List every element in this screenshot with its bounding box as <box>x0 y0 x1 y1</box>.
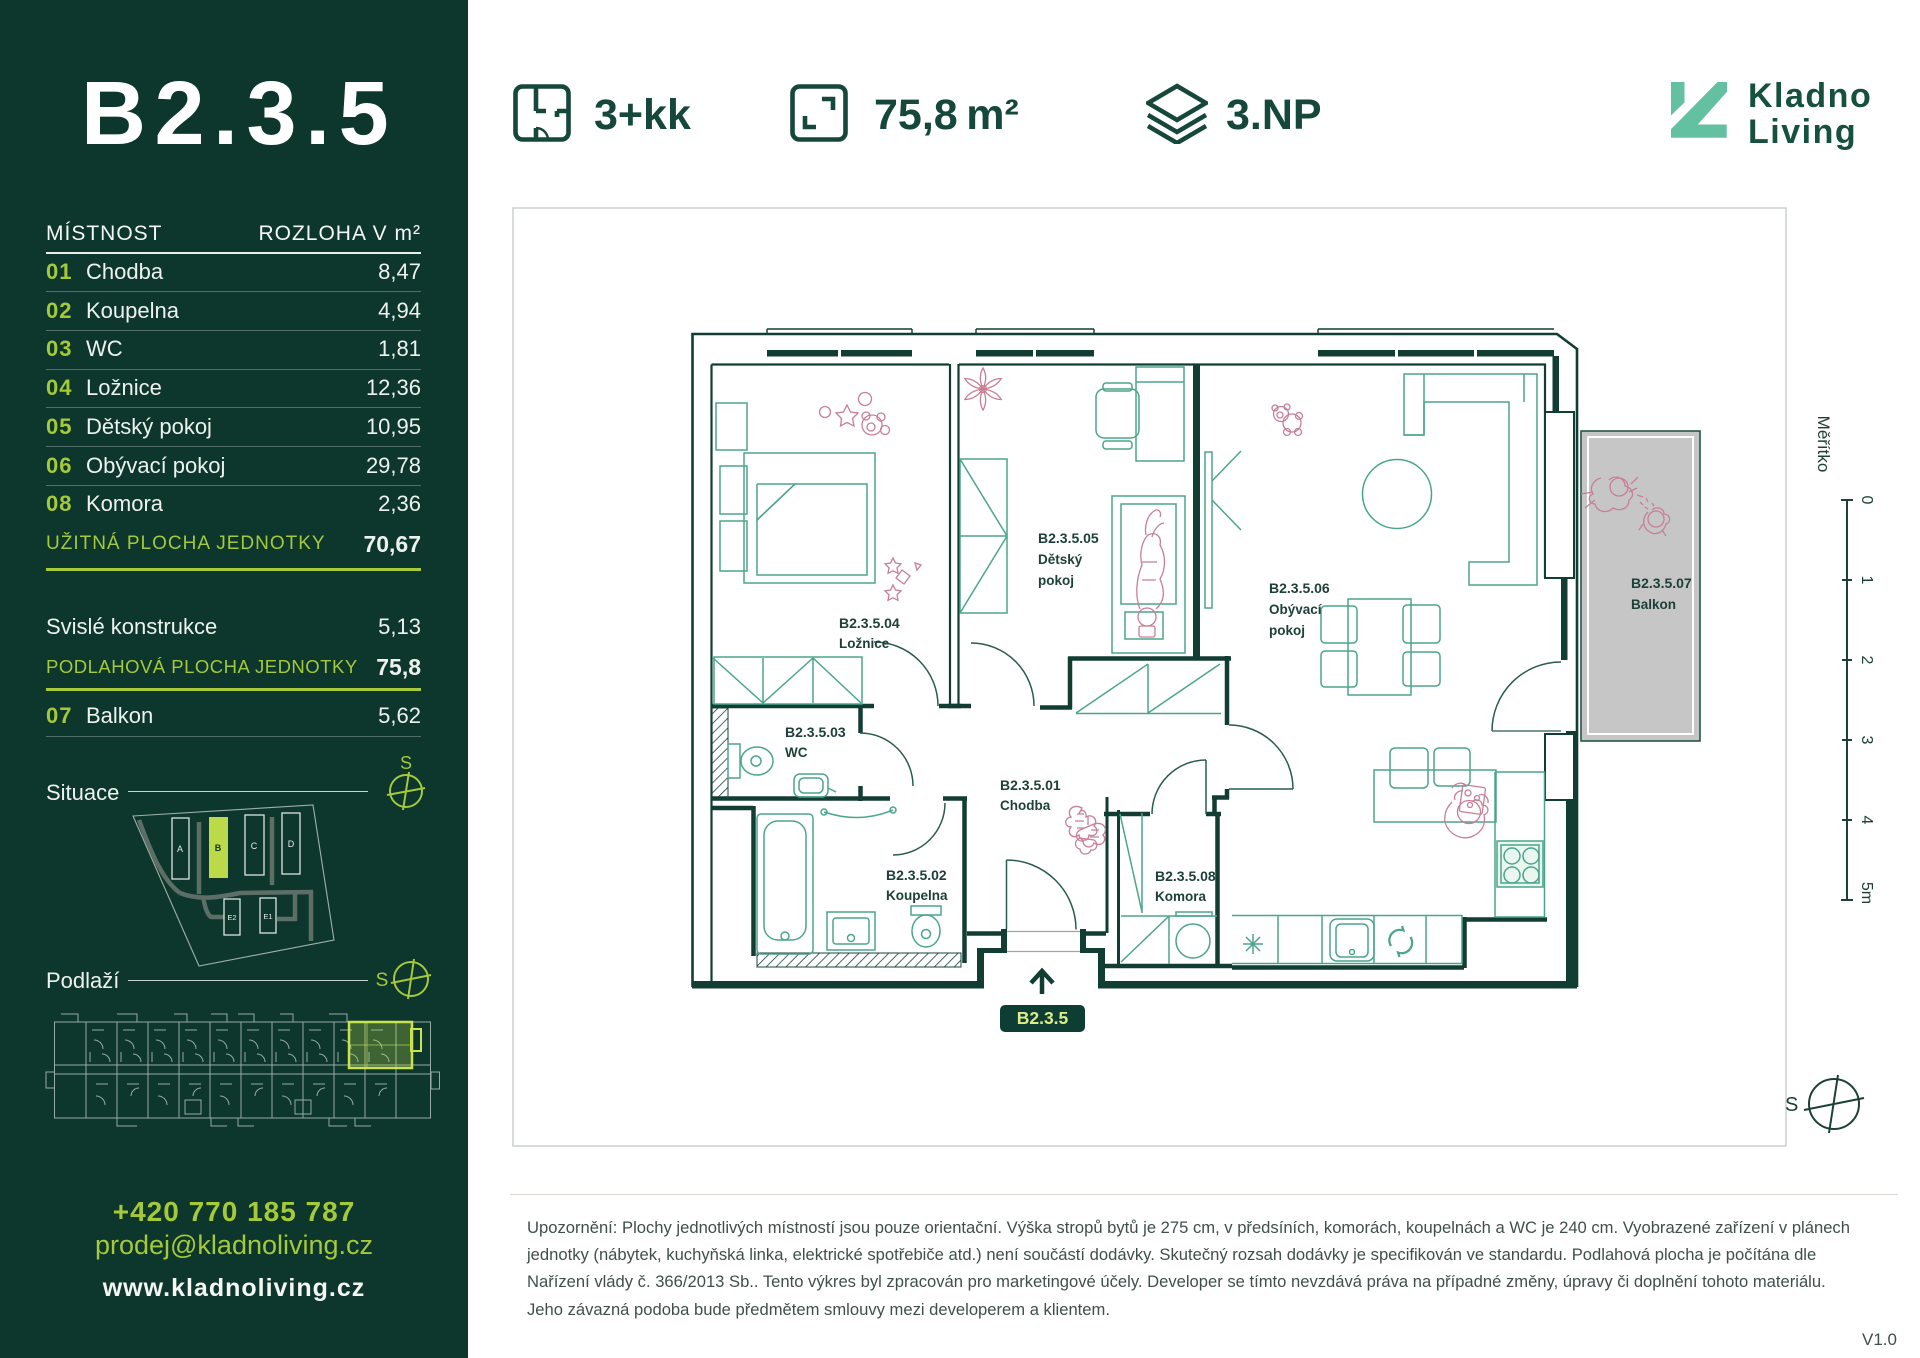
svg-text:Měřítko: Měřítko <box>1814 416 1833 473</box>
svg-text:A: A <box>177 844 183 854</box>
svg-text:Balkon: Balkon <box>1631 597 1676 612</box>
svg-text:B2.3.5.07: B2.3.5.07 <box>1631 575 1692 591</box>
svg-text:B2.3.5.05: B2.3.5.05 <box>1038 530 1099 546</box>
svg-text:B2.3.5.04: B2.3.5.04 <box>839 615 900 631</box>
svg-text:S: S <box>1785 1094 1798 1116</box>
svg-text:Koupelna: Koupelna <box>886 888 948 903</box>
svg-text:WC: WC <box>785 745 808 760</box>
svg-text:D: D <box>288 839 295 849</box>
svg-text:2: 2 <box>1858 656 1875 665</box>
svg-text:Obývací: Obývací <box>1269 602 1323 617</box>
svg-text:E2: E2 <box>227 913 236 922</box>
svg-text:B2.3.5.02: B2.3.5.02 <box>886 867 947 883</box>
svg-text:E1: E1 <box>263 912 272 921</box>
svg-text:3: 3 <box>1858 736 1875 745</box>
svg-text:B2.3.5.06: B2.3.5.06 <box>1269 580 1330 596</box>
svg-text:Kladno: Kladno <box>1748 82 1872 115</box>
svg-text:B2.3.5.01: B2.3.5.01 <box>1000 777 1061 793</box>
svg-text:4: 4 <box>1858 816 1875 825</box>
svg-text:B2.3.5.08: B2.3.5.08 <box>1155 868 1216 884</box>
svg-text:C: C <box>251 841 258 851</box>
svg-text:S: S <box>376 970 389 991</box>
svg-text:0: 0 <box>1858 496 1875 505</box>
svg-text:pokoj: pokoj <box>1038 573 1074 588</box>
svg-text:5m: 5m <box>1858 882 1875 904</box>
svg-text:Dětský: Dětský <box>1038 552 1083 567</box>
svg-text:Chodba: Chodba <box>1000 798 1051 813</box>
svg-text:B2.3.5: B2.3.5 <box>1017 1008 1069 1028</box>
svg-text:B: B <box>215 843 222 853</box>
svg-text:Ložnice: Ložnice <box>839 636 890 651</box>
svg-text:Living: Living <box>1748 113 1857 151</box>
svg-text:S: S <box>400 753 412 773</box>
svg-text:1: 1 <box>1858 576 1875 585</box>
svg-text:pokoj: pokoj <box>1269 623 1305 638</box>
svg-text:Komora: Komora <box>1155 889 1206 904</box>
svg-text:B2.3.5.03: B2.3.5.03 <box>785 724 846 740</box>
